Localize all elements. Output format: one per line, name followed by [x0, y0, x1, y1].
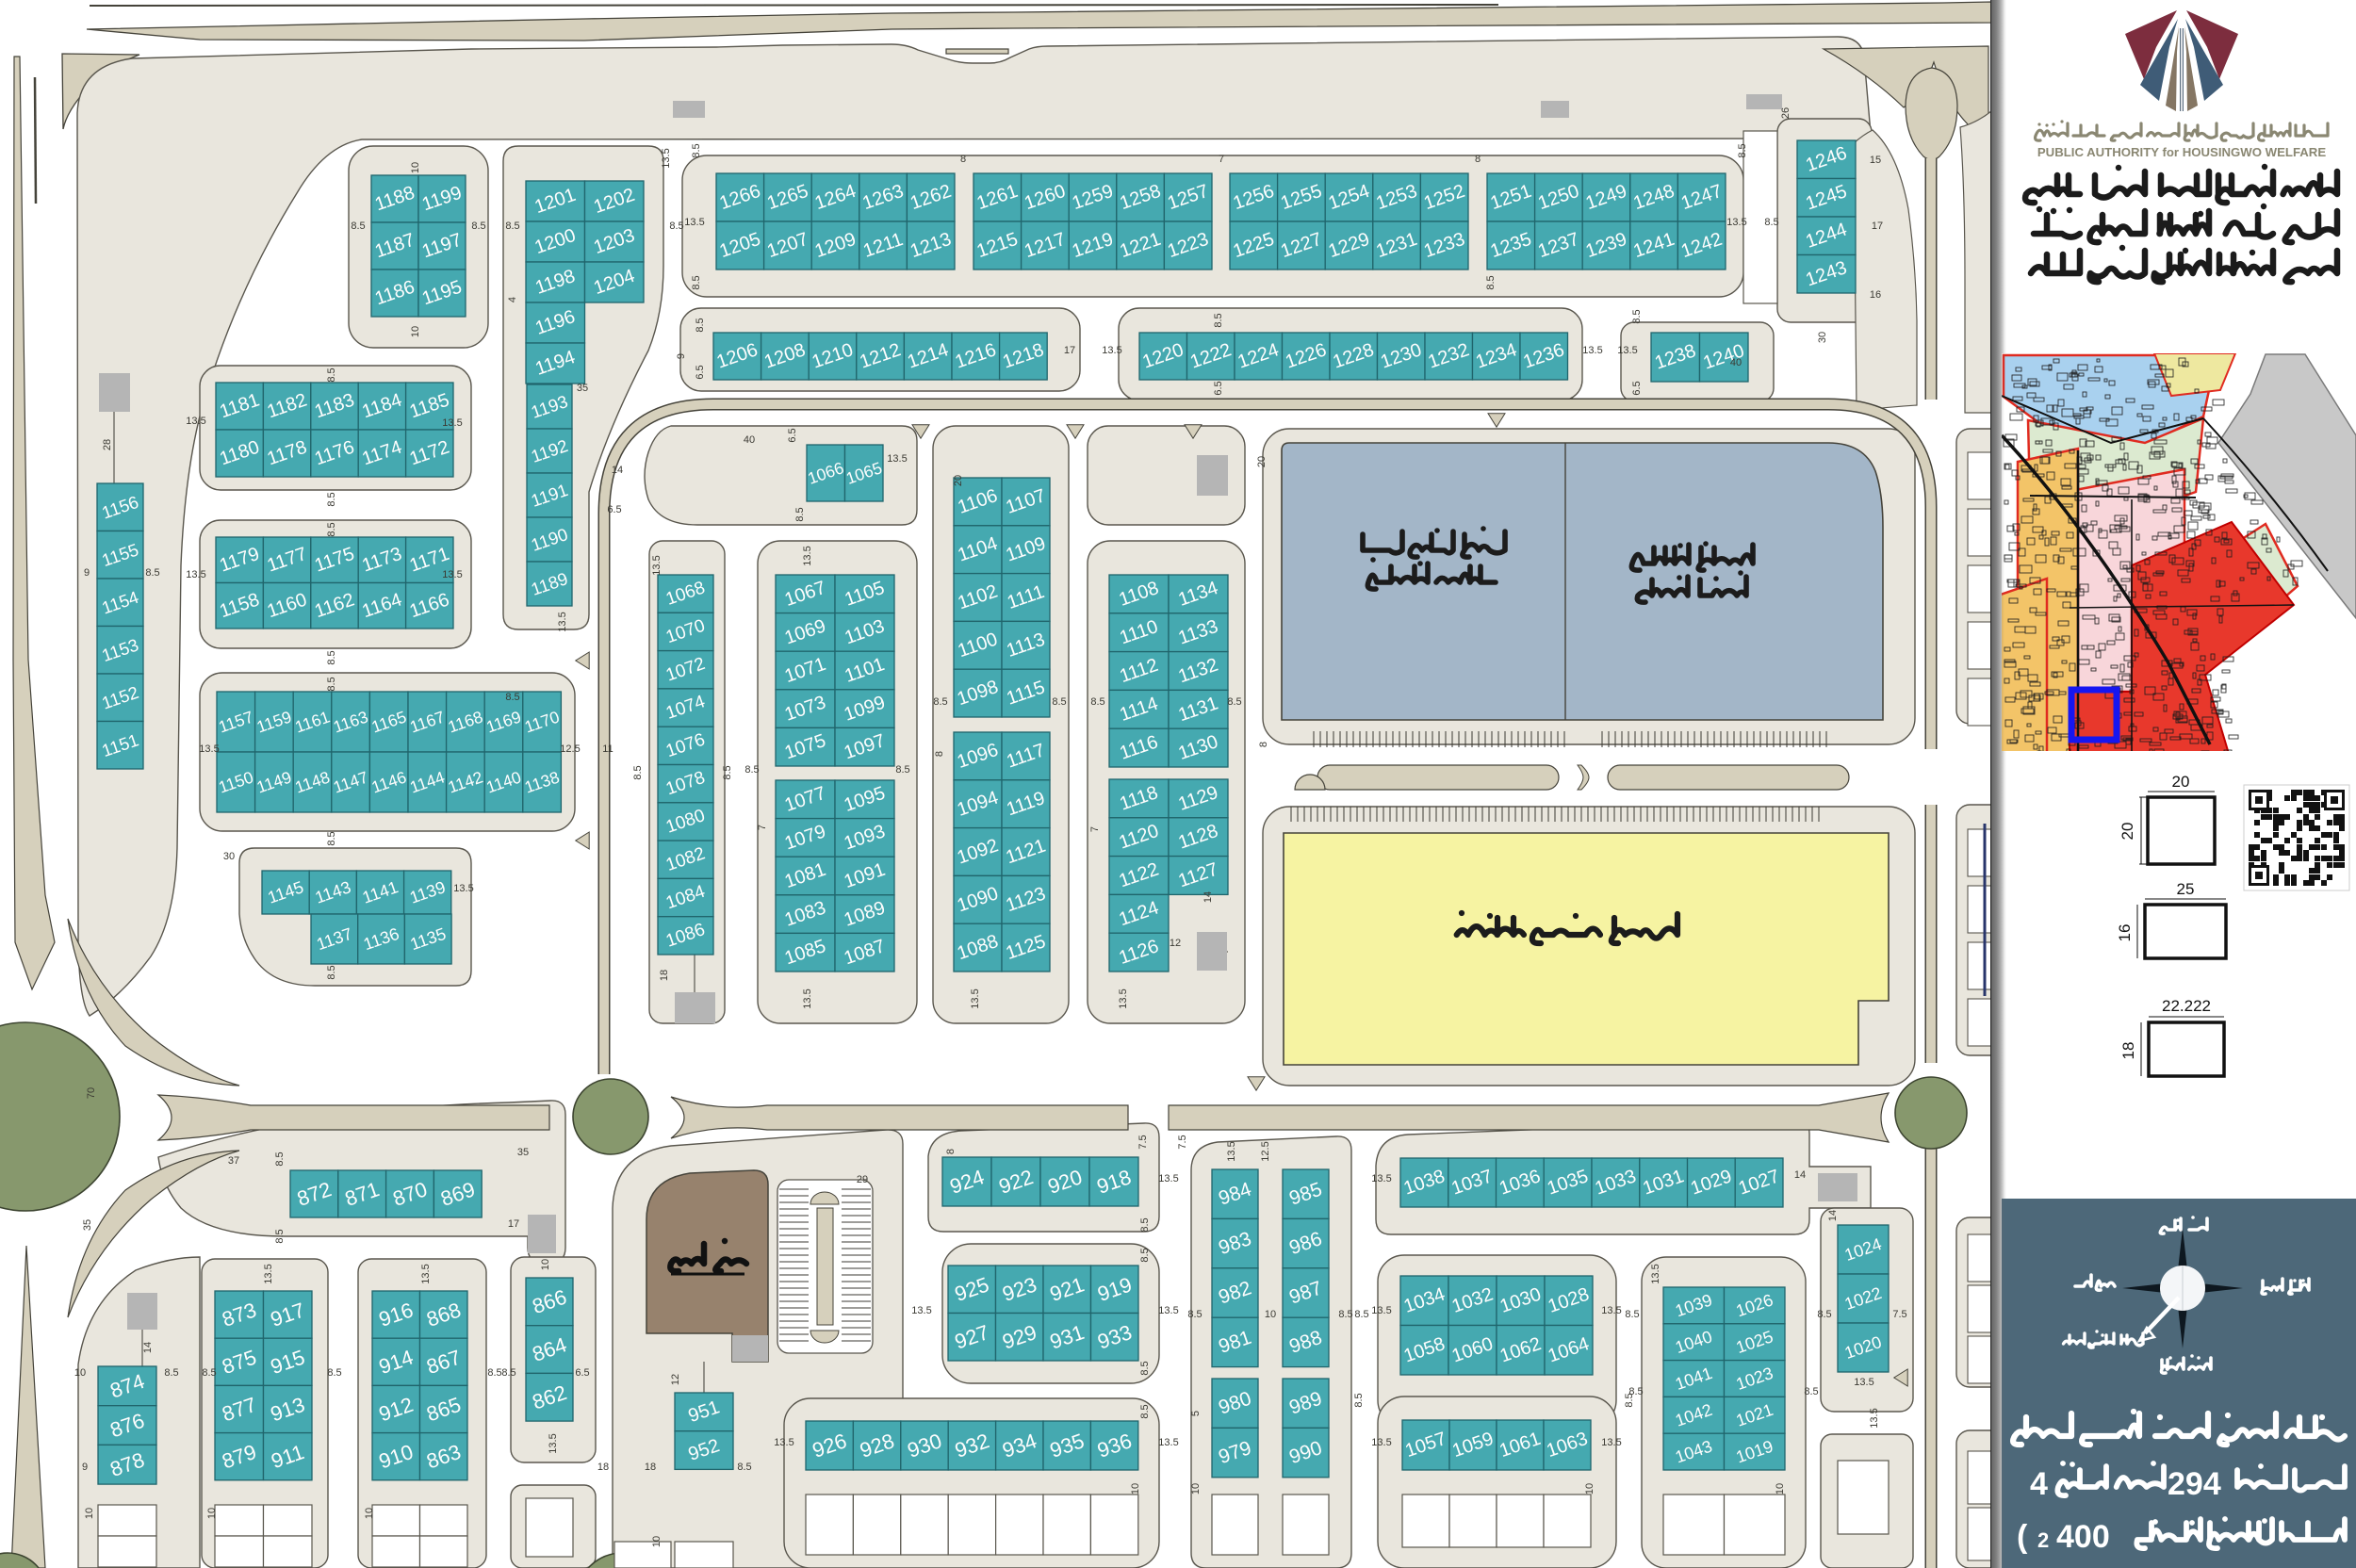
svg-text:14: 14 — [1827, 1210, 1839, 1221]
svg-text:8.5: 8.5 — [327, 1367, 341, 1379]
svg-text:8.5: 8.5 — [1338, 1309, 1352, 1320]
svg-text:13.5: 13.5 — [1118, 988, 1129, 1008]
svg-text:13.5: 13.5 — [970, 988, 981, 1008]
svg-text:17: 17 — [508, 1218, 519, 1230]
svg-text:8.5: 8.5 — [1353, 1393, 1365, 1407]
svg-text:10: 10 — [651, 1536, 663, 1547]
svg-text:8.5: 8.5 — [1485, 275, 1497, 289]
svg-text:8.5: 8.5 — [145, 567, 159, 579]
svg-text:40: 40 — [1730, 357, 1742, 368]
svg-text:8.5: 8.5 — [326, 367, 337, 382]
svg-text:40: 40 — [744, 434, 755, 446]
svg-text:13.5: 13.5 — [557, 612, 568, 631]
svg-text:13.5: 13.5 — [1726, 217, 1746, 228]
svg-text:13.5: 13.5 — [651, 555, 663, 575]
svg-text:8.5: 8.5 — [722, 765, 733, 779]
svg-text:8.5: 8.5 — [1052, 696, 1066, 708]
svg-text:6.5: 6.5 — [1213, 381, 1224, 395]
svg-text:10: 10 — [206, 1508, 218, 1519]
svg-text:8.5: 8.5 — [505, 220, 519, 232]
svg-text:8.5: 8.5 — [1817, 1309, 1831, 1320]
svg-text:10: 10 — [540, 1259, 551, 1270]
svg-text:8: 8 — [960, 154, 966, 165]
svg-text:14: 14 — [1794, 1169, 1806, 1181]
svg-text:28: 28 — [102, 439, 113, 450]
svg-text:2: 2 — [2037, 1528, 2049, 1552]
svg-text:8: 8 — [1258, 742, 1269, 747]
svg-text:7: 7 — [1089, 826, 1101, 832]
svg-text:30: 30 — [1817, 332, 1828, 343]
svg-text:4: 4 — [2030, 1466, 2048, 1502]
svg-text:8.5: 8.5 — [326, 677, 337, 691]
svg-text:10: 10 — [410, 162, 421, 173]
svg-text:13.5: 13.5 — [1869, 1408, 1880, 1428]
svg-text:35: 35 — [517, 1147, 529, 1158]
svg-text:18: 18 — [659, 970, 670, 981]
svg-text:8.5: 8.5 — [737, 1462, 751, 1473]
svg-text:20: 20 — [2172, 773, 2190, 791]
svg-text:8: 8 — [1475, 154, 1481, 165]
svg-text:8.5: 8.5 — [1631, 309, 1643, 323]
svg-text:13.5: 13.5 — [661, 148, 672, 168]
svg-text:13.5: 13.5 — [1854, 1377, 1873, 1388]
svg-text:10: 10 — [1775, 1483, 1786, 1494]
svg-text:8.5: 8.5 — [487, 1367, 501, 1379]
svg-text:8.5: 8.5 — [1764, 217, 1778, 228]
svg-text:13.5: 13.5 — [802, 546, 813, 565]
svg-text:10: 10 — [364, 1508, 375, 1519]
svg-text:8.5: 8.5 — [471, 220, 485, 232]
svg-text:13.5: 13.5 — [199, 743, 219, 755]
svg-text:6.5: 6.5 — [787, 428, 798, 442]
svg-text:7: 7 — [1219, 154, 1224, 165]
svg-text:22.222: 22.222 — [2162, 997, 2211, 1015]
svg-text:9: 9 — [82, 1462, 88, 1473]
svg-text:16: 16 — [1870, 289, 1881, 301]
svg-text:13.5: 13.5 — [1102, 345, 1121, 356]
svg-text:13.5: 13.5 — [1226, 1141, 1237, 1161]
svg-text:8.5: 8.5 — [794, 507, 806, 521]
svg-text:13.5: 13.5 — [774, 1437, 794, 1448]
svg-text:13.5: 13.5 — [442, 569, 462, 580]
svg-text:16: 16 — [2116, 924, 2134, 942]
svg-text:8.5: 8.5 — [1139, 1404, 1151, 1418]
svg-text:20: 20 — [1256, 456, 1268, 467]
svg-text:9: 9 — [84, 567, 90, 579]
svg-text:8.5: 8.5 — [933, 696, 947, 708]
svg-text:13.5: 13.5 — [911, 1305, 931, 1316]
svg-text:8.5: 8.5 — [1139, 1361, 1151, 1375]
svg-text:18: 18 — [597, 1462, 609, 1473]
svg-text:8.5: 8.5 — [326, 650, 337, 664]
svg-text:13.5: 13.5 — [186, 569, 205, 580]
svg-text:8.5: 8.5 — [1139, 1248, 1151, 1262]
svg-text:8.5: 8.5 — [1187, 1309, 1202, 1320]
svg-text:8.5: 8.5 — [326, 965, 337, 979]
svg-text:18: 18 — [645, 1462, 656, 1473]
svg-text:18: 18 — [2119, 1042, 2137, 1060]
svg-text:13.5: 13.5 — [1650, 1264, 1661, 1283]
svg-text:13.5: 13.5 — [453, 883, 473, 894]
svg-text:12: 12 — [670, 1374, 681, 1385]
svg-text:29: 29 — [857, 1174, 868, 1185]
svg-text:8.5: 8.5 — [669, 220, 683, 232]
svg-text:6.5: 6.5 — [575, 1367, 589, 1379]
svg-text:8.5: 8.5 — [1804, 1386, 1818, 1397]
svg-text:10: 10 — [84, 1508, 95, 1519]
svg-text:13.5: 13.5 — [1601, 1437, 1621, 1448]
svg-text:13.5: 13.5 — [442, 417, 462, 429]
svg-text:7.5: 7.5 — [1177, 1135, 1188, 1149]
svg-text:8.5: 8.5 — [1139, 1217, 1151, 1232]
svg-text:13.5: 13.5 — [684, 217, 704, 228]
svg-text:8.5: 8.5 — [505, 692, 519, 703]
svg-text:8.5: 8.5 — [1090, 696, 1104, 708]
svg-text:13.5: 13.5 — [1158, 1173, 1178, 1184]
svg-text:17: 17 — [1064, 345, 1075, 356]
svg-text:8.5: 8.5 — [326, 831, 337, 845]
svg-text:8.5: 8.5 — [691, 275, 702, 289]
svg-text:8.5: 8.5 — [202, 1367, 216, 1379]
svg-text:8.5: 8.5 — [1737, 143, 1748, 157]
svg-text:20: 20 — [2119, 823, 2136, 841]
svg-text:14: 14 — [142, 1342, 154, 1353]
svg-text:12.5: 12.5 — [1260, 1141, 1271, 1161]
svg-text:8: 8 — [945, 1149, 957, 1154]
svg-text:8.5: 8.5 — [274, 1229, 286, 1243]
svg-text:10: 10 — [1190, 1483, 1202, 1494]
svg-text:14: 14 — [1203, 891, 1214, 903]
svg-text:12: 12 — [1170, 938, 1181, 949]
svg-text:13.5: 13.5 — [1371, 1437, 1391, 1448]
svg-text:10: 10 — [74, 1367, 86, 1379]
svg-text:6.5: 6.5 — [695, 365, 706, 379]
svg-text:13.5: 13.5 — [1371, 1173, 1391, 1184]
svg-text:13.5: 13.5 — [1617, 345, 1637, 356]
svg-text:8.5: 8.5 — [1213, 313, 1224, 327]
svg-text:13.5: 13.5 — [1601, 1305, 1621, 1316]
svg-text:8.5: 8.5 — [895, 764, 909, 776]
svg-text:25: 25 — [2177, 880, 2195, 898]
svg-text:8.5: 8.5 — [1625, 1309, 1639, 1320]
svg-text:4: 4 — [507, 297, 518, 302]
svg-text:7.5: 7.5 — [1892, 1309, 1906, 1320]
svg-text:8.5: 8.5 — [1354, 1309, 1368, 1320]
svg-text:7: 7 — [757, 825, 768, 830]
svg-text:5: 5 — [1190, 1411, 1202, 1416]
svg-text:10: 10 — [1130, 1483, 1141, 1494]
svg-text:8.5: 8.5 — [326, 522, 337, 536]
svg-text:8.5: 8.5 — [326, 492, 337, 506]
svg-text:400: 400 — [2056, 1519, 2110, 1555]
svg-text:8.5: 8.5 — [691, 143, 702, 157]
svg-text:8.5: 8.5 — [164, 1367, 178, 1379]
svg-text:8.5: 8.5 — [274, 1151, 286, 1166]
svg-text:17: 17 — [1872, 220, 1883, 232]
svg-text:10: 10 — [1265, 1309, 1276, 1320]
svg-text:294: 294 — [2168, 1466, 2221, 1502]
svg-text:10: 10 — [1584, 1483, 1595, 1494]
svg-text:10: 10 — [410, 326, 421, 337]
svg-text:13.5: 13.5 — [1371, 1305, 1391, 1316]
svg-text:8.5: 8.5 — [351, 220, 365, 232]
svg-text:13.5: 13.5 — [263, 1264, 274, 1283]
svg-text:35: 35 — [82, 1219, 93, 1231]
svg-text:8: 8 — [934, 751, 945, 757]
svg-text:9: 9 — [676, 353, 687, 359]
svg-text:13.5: 13.5 — [1158, 1305, 1178, 1316]
svg-text:8.5: 8.5 — [1227, 696, 1241, 708]
svg-text:13.5: 13.5 — [548, 1433, 559, 1453]
svg-text:13.5: 13.5 — [1158, 1437, 1178, 1448]
svg-text:11: 11 — [602, 743, 613, 755]
svg-text:8.5: 8.5 — [501, 1367, 515, 1379]
svg-text:13.5: 13.5 — [1582, 345, 1602, 356]
svg-text:8.5: 8.5 — [695, 318, 706, 332]
svg-text:8.5: 8.5 — [632, 765, 644, 779]
svg-text:26: 26 — [1780, 107, 1792, 119]
svg-text:6.5: 6.5 — [607, 504, 621, 515]
svg-text:12.5: 12.5 — [560, 743, 580, 755]
svg-text:70: 70 — [86, 1087, 97, 1099]
svg-text:PUBLIC AUTHORITY for HOUSINGWO: PUBLIC AUTHORITY for HOUSINGWO WELFARE — [2037, 145, 2326, 159]
svg-text:8.5: 8.5 — [1628, 1386, 1643, 1397]
svg-text:7.5: 7.5 — [1137, 1135, 1149, 1149]
svg-text:13.5: 13.5 — [887, 453, 907, 465]
svg-text:13.5: 13.5 — [802, 988, 813, 1008]
svg-text:35: 35 — [577, 383, 588, 394]
svg-text:6.5: 6.5 — [1631, 381, 1643, 395]
svg-text:14: 14 — [612, 465, 623, 476]
svg-text:8.5: 8.5 — [744, 764, 759, 776]
svg-text:37: 37 — [228, 1155, 239, 1167]
svg-text:13.5: 13.5 — [186, 416, 205, 427]
svg-text:15: 15 — [1870, 155, 1881, 166]
svg-text:13.5: 13.5 — [420, 1264, 432, 1283]
svg-text:30: 30 — [223, 851, 235, 862]
svg-text:20: 20 — [953, 475, 964, 486]
svg-text:(: ( — [2017, 1519, 2028, 1555]
